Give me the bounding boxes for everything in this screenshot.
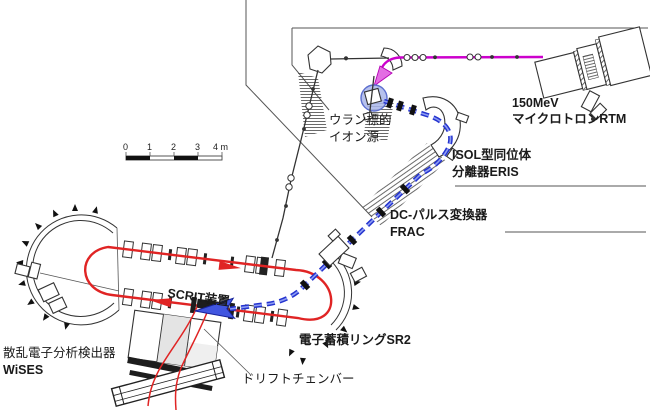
- label-rtm-name: マイクロトロンRTM: [512, 112, 626, 126]
- scale-tick-1: 1: [147, 142, 152, 152]
- scale-tick-4m: 4 m: [213, 142, 228, 152]
- label-wises-line2: WiSES: [3, 363, 43, 377]
- label-drift-chamber: ドリフトチェンバー: [242, 372, 355, 386]
- label-rtm-energy: 150MeV: [512, 96, 559, 110]
- facility-diagram-svg: 0 1 2 3 4 m 150MeV マイクロトロンRTM ウラン標的 イオン源…: [0, 0, 650, 414]
- scrit-facility-diagram: 0 1 2 3 4 m 150MeV マイクロトロンRTM ウラン標的 イオン源…: [0, 0, 650, 414]
- label-wises-line1: 散乱電子分析検出器: [3, 345, 116, 360]
- scale-tick-2: 2: [171, 142, 176, 152]
- label-ion-source-line1: ウラン標的: [329, 112, 392, 127]
- label-eris-line2: 分離器ERIS: [452, 164, 519, 179]
- label-frac-line2: FRAC: [390, 225, 425, 239]
- label-frac-line1: DC-パルス変換器: [390, 207, 488, 222]
- scale-tick-0: 0: [123, 142, 128, 152]
- label-ion-source-line2: イオン源: [329, 130, 380, 144]
- label-sr2: 電子蓄積リングSR2: [299, 332, 411, 347]
- label-eris-line1: ISOL型同位体: [452, 147, 532, 162]
- scale-tick-3: 3: [195, 142, 200, 152]
